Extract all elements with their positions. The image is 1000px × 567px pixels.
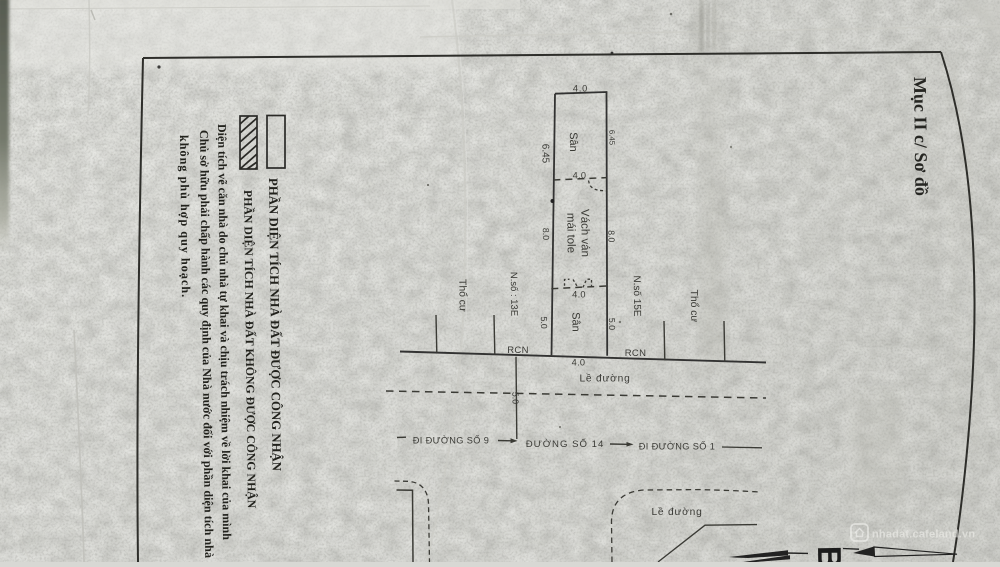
svg-text:4.0: 4.0	[572, 290, 586, 300]
svg-text:RCN: RCN	[625, 348, 646, 359]
svg-text:Thổ cư: Thổ cư	[456, 279, 468, 312]
svg-text:8.0: 8.0	[541, 228, 551, 240]
svg-text:mái tole: mái tole	[564, 213, 576, 253]
svg-text:Thổ cư: Thổ cư	[688, 290, 700, 323]
svg-text:4.0: 4.0	[573, 84, 588, 94]
svg-text:Lề đường: Lề đường	[651, 506, 702, 518]
svg-text:5.0: 5.0	[510, 392, 520, 404]
svg-text:5.0: 5.0	[539, 316, 549, 328]
svg-text:ĐI ĐƯỜNG SỐ 9: ĐI ĐƯỜNG SỐ 9	[413, 435, 490, 446]
svg-text:4.0: 4.0	[573, 171, 587, 181]
svg-text:6.45: 6.45	[607, 130, 616, 146]
svg-text:ĐƯỜNG SỐ 14: ĐƯỜNG SỐ 14	[526, 438, 605, 450]
svg-text:8.0: 8.0	[606, 230, 616, 242]
svg-text:6.45: 6.45	[539, 144, 550, 164]
svg-text:Sân: Sân	[567, 132, 579, 152]
svg-text:không phù hợp quy hoạch.: không phù hợp quy hoạch.	[177, 135, 193, 298]
svg-text:Mục II c/ Sơ đồ: Mục II c/ Sơ đồ	[910, 77, 931, 196]
svg-text:RCN: RCN	[507, 345, 528, 356]
svg-text:N.số : 13E: N.số : 13E	[508, 272, 520, 316]
svg-text:Vách ván: Vách ván	[578, 209, 591, 257]
svg-text:ĐI ĐƯỜNG SỐ 1: ĐI ĐƯỜNG SỐ 1	[639, 441, 716, 452]
svg-text:N.số 15E: N.số 15E	[631, 275, 644, 317]
svg-text:Sân: Sân	[569, 312, 581, 332]
svg-text:Lề đường: Lề đường	[579, 373, 630, 385]
svg-text:B: B	[811, 546, 848, 562]
svg-text:5.0: 5.0	[607, 318, 617, 330]
svg-text:4.0: 4.0	[572, 358, 586, 368]
svg-text:nhadat.cafeland.vn: nhadat.cafeland.vn	[872, 529, 975, 541]
